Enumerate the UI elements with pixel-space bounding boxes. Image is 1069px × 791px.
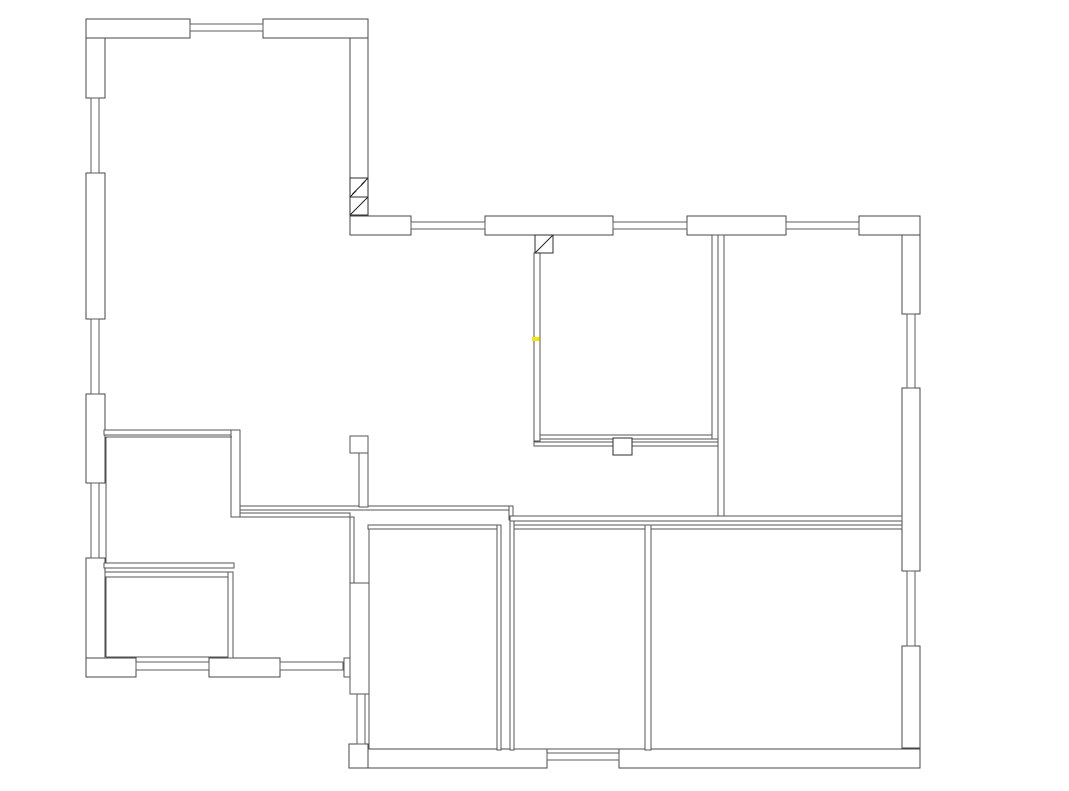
exterior-wall-segment xyxy=(86,173,105,319)
exterior-wall-segment xyxy=(902,388,920,571)
exterior-wall-segment xyxy=(209,658,280,677)
exterior-wall-segment xyxy=(368,749,547,768)
interior-wall-segment xyxy=(497,525,501,750)
interior-wall-segment xyxy=(510,516,902,521)
interior-wall-segment xyxy=(645,525,651,750)
exterior-wall-segment xyxy=(86,394,105,483)
exterior-wall-segment xyxy=(349,744,368,768)
exterior-wall-segment xyxy=(350,38,368,178)
exterior-wall-segment xyxy=(902,235,920,314)
interior-wall-segment xyxy=(651,525,902,529)
interior-wall-segment xyxy=(240,506,510,510)
exterior-wall-segment xyxy=(86,658,136,677)
interior-wall-segment xyxy=(350,436,368,453)
interior-wall-segment xyxy=(718,235,724,516)
interior-wall-segment xyxy=(104,430,240,435)
interior-wall-segment xyxy=(350,583,369,694)
interior-wall-segment xyxy=(359,453,368,507)
window-symbol xyxy=(136,662,209,670)
interior-wall-segment xyxy=(231,430,240,517)
exterior-wall-segment xyxy=(263,19,368,38)
exterior-wall-segment xyxy=(86,19,190,38)
window-symbol xyxy=(786,222,859,229)
interior-wall-segment xyxy=(350,517,354,583)
exterior-wall-segment xyxy=(619,749,920,768)
window-symbol xyxy=(91,483,99,558)
window-symbol xyxy=(280,662,343,670)
window-symbol xyxy=(91,319,99,394)
window-symbol xyxy=(613,222,687,229)
interior-wall-segment xyxy=(105,572,233,577)
window-symbol xyxy=(907,314,915,388)
exterior-wall-segment xyxy=(86,38,105,98)
interior-wall-segment xyxy=(368,525,501,529)
window-symbol xyxy=(411,222,485,229)
window-symbol xyxy=(907,571,915,646)
cad-viewport[interactable] xyxy=(0,0,1069,791)
window-symbol xyxy=(190,24,263,31)
exterior-wall-segment xyxy=(902,646,920,748)
exterior-wall-segment xyxy=(350,216,411,235)
interior-wall-segment xyxy=(104,563,234,568)
window-symbol xyxy=(547,753,619,760)
exterior-wall-segment xyxy=(86,558,105,658)
interior-wall-segment xyxy=(534,253,540,441)
interior-wall-segment xyxy=(712,235,718,439)
interior-wall-segment xyxy=(514,525,645,529)
door-swing-symbol xyxy=(613,438,632,455)
exterior-wall-segment xyxy=(485,216,613,235)
exterior-wall-segment xyxy=(859,216,920,235)
interior-wall-segment xyxy=(344,658,350,677)
selection-highlight-mark xyxy=(532,337,539,341)
window-symbol xyxy=(357,692,365,744)
exterior-wall-segment xyxy=(687,216,786,235)
interior-wall-segment xyxy=(240,513,350,517)
floor-plan-canvas[interactable] xyxy=(0,0,1069,791)
window-symbol xyxy=(91,98,99,173)
interior-wall-segment xyxy=(510,521,514,750)
interior-wall-segment xyxy=(228,572,233,658)
